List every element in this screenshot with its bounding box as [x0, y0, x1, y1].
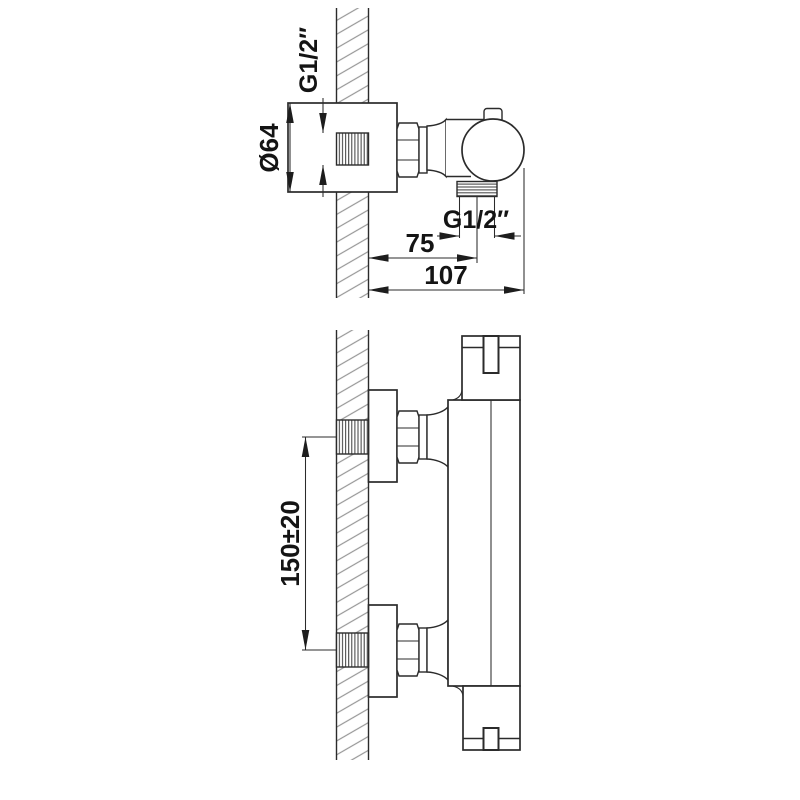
upper-union-nut: [397, 411, 419, 463]
lower-washer-ring: [419, 628, 427, 672]
lower-inlet-flare: [427, 620, 448, 680]
thermostat-knob-circle: [462, 119, 524, 181]
dim-inlet-spacing-label: 150±20: [275, 500, 305, 587]
technical-drawing-canvas: G1/2″ Ø64 G1/2″ 75 10: [0, 0, 800, 800]
outlet-thread: [457, 182, 497, 197]
dim-outlet-thread-label: G1/2″: [443, 206, 509, 234]
lower-inlet-nipple-thread: [337, 633, 369, 667]
lower-escutcheon-plate: [369, 605, 398, 697]
dim-inlet-spacing: 150±20: [275, 437, 337, 650]
dim-wall-to-outlet-label: 75: [406, 228, 435, 258]
union-nut: [397, 123, 419, 177]
mixer-bar-body: [448, 400, 520, 686]
dim-outlet-thread: G1/2″: [437, 206, 521, 240]
side-view: G1/2″ Ø64 G1/2″ 75 10: [254, 8, 524, 298]
lower-union-nut: [397, 624, 419, 676]
top-knob-slot: [484, 336, 499, 373]
inlet-flare: [427, 120, 446, 177]
inlet-nipple-thread: [337, 133, 369, 165]
top-knob-base-fillet: [453, 390, 462, 400]
dim-wall-to-front-label: 107: [424, 260, 467, 290]
bottom-knob-slot: [484, 728, 499, 750]
bottom-knob-base-fillet: [453, 686, 463, 696]
dim-inlet-thread-label: G1/2″: [295, 27, 323, 93]
dim-wall-to-front: 107: [369, 260, 525, 294]
bottom-knob: [453, 686, 520, 750]
upper-escutcheon-plate: [369, 390, 398, 482]
washer-ring: [419, 127, 427, 173]
upper-inlet-nipple-thread: [337, 420, 369, 454]
upper-washer-ring: [419, 415, 427, 459]
dim-plate-diameter-label: Ø64: [254, 123, 284, 173]
top-knob: [453, 336, 520, 400]
upper-inlet-flare: [427, 407, 448, 467]
front-view: 150±20: [275, 330, 520, 760]
wall-hatch-bottom: [337, 330, 369, 760]
